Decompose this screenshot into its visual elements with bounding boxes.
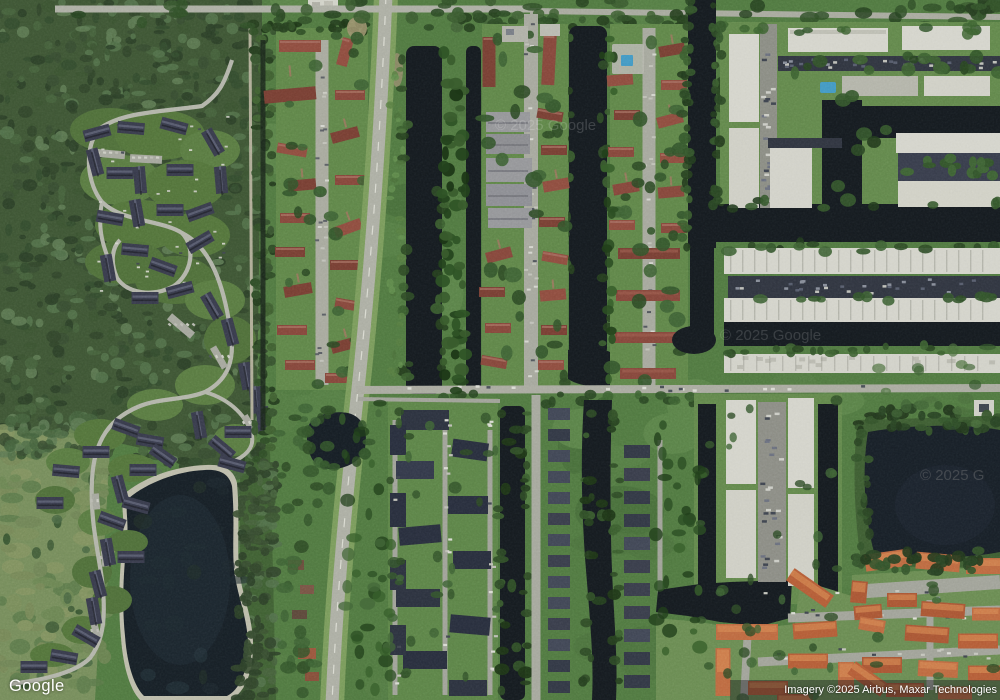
svg-text:© 2025 G: © 2025 G: [920, 467, 984, 484]
svg-text:© 2025 Google: © 2025 Google: [720, 327, 821, 344]
svg-text:© 2025 Google: © 2025 Google: [495, 117, 596, 134]
